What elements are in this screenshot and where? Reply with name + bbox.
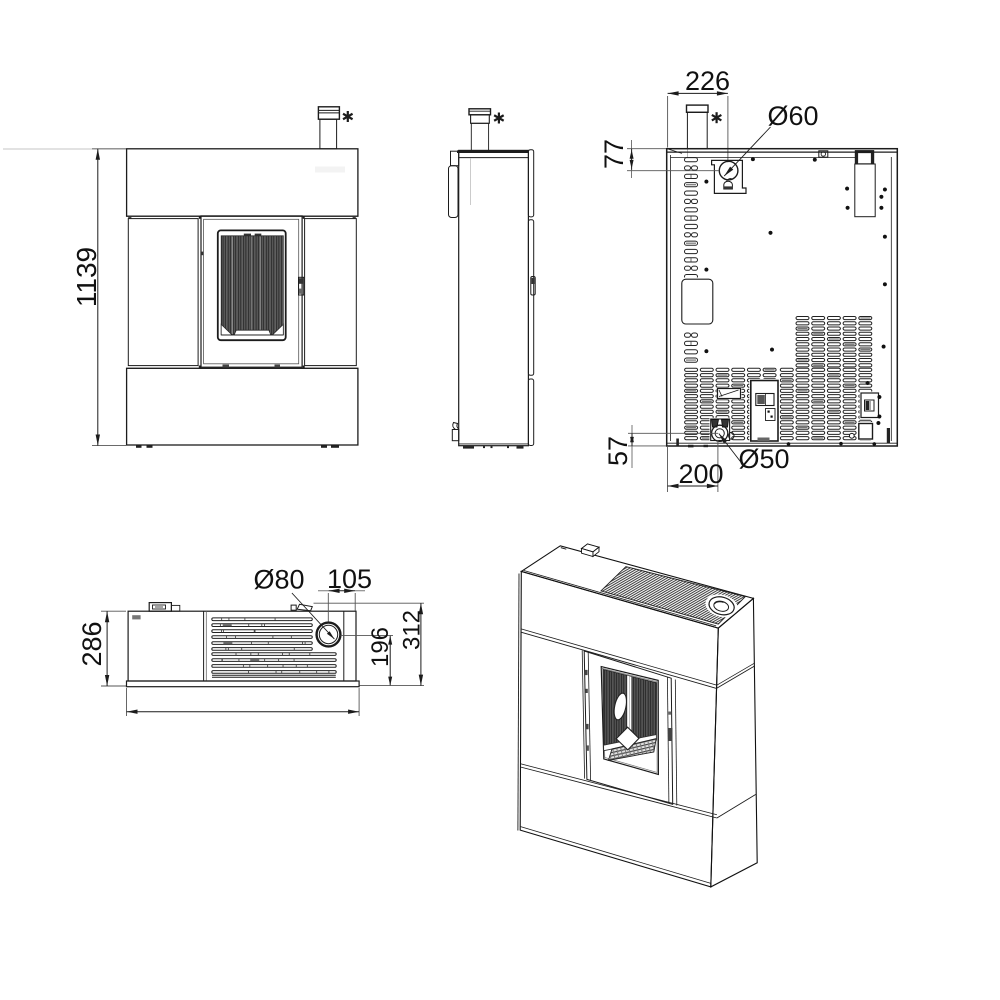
svg-text:77: 77 [599, 139, 629, 169]
svg-text:Ø60: Ø60 [767, 101, 818, 131]
svg-text:Ø50: Ø50 [738, 444, 789, 474]
svg-text:1139: 1139 [71, 247, 102, 307]
svg-text:286: 286 [77, 621, 107, 666]
svg-text:312: 312 [399, 610, 426, 650]
svg-text:105: 105 [327, 564, 372, 594]
svg-text:196: 196 [367, 627, 394, 667]
svg-text:57: 57 [603, 436, 633, 466]
svg-text:200: 200 [678, 459, 723, 489]
svg-text:Ø80: Ø80 [253, 565, 304, 595]
svg-text:226: 226 [685, 66, 730, 96]
